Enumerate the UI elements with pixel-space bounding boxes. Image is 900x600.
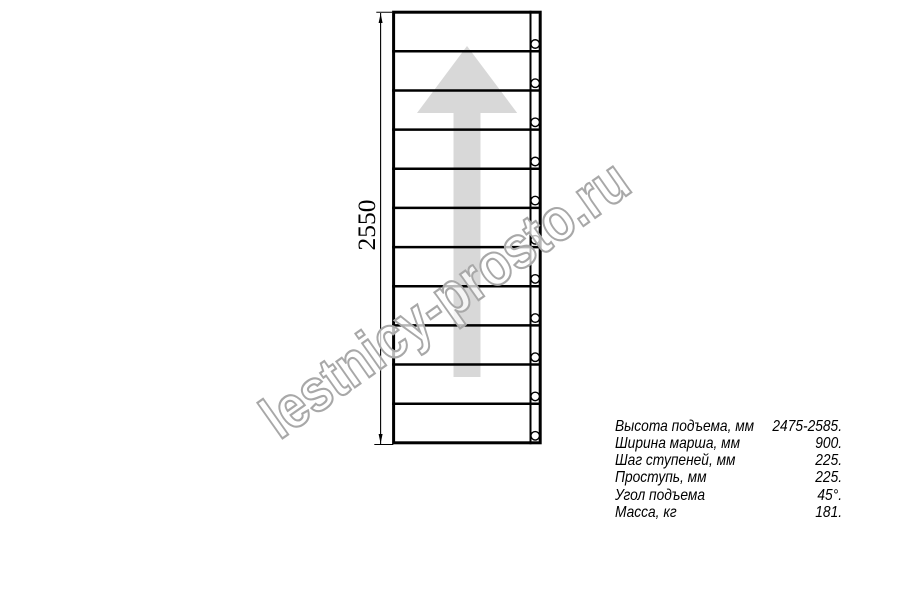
svg-text:2550: 2550 <box>352 200 381 251</box>
svg-text:lestnicy-prosto.ru: lestnicy-prosto.ru <box>248 146 641 451</box>
